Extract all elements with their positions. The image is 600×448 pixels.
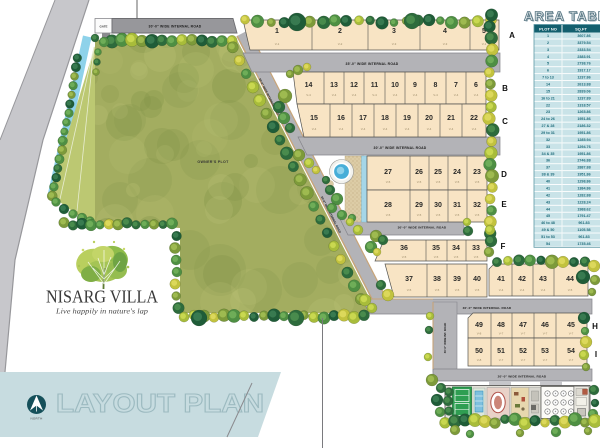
svg-text:49 & 50: 49 & 50 [542, 228, 555, 232]
svg-text:1: 1 [547, 34, 549, 38]
svg-text:V-4: V-4 [541, 288, 546, 292]
svg-text:V-4: V-4 [454, 93, 459, 97]
svg-text:AREA TABLE: AREA TABLE [524, 9, 600, 24]
svg-text:33: 33 [472, 245, 480, 252]
svg-text:V-5: V-5 [568, 288, 573, 292]
svg-text:V-1: V-1 [275, 42, 280, 46]
svg-text:22: 22 [470, 115, 478, 122]
svg-text:D: D [501, 170, 507, 179]
svg-text:1988.62: 1988.62 [577, 207, 590, 211]
svg-text:37: 37 [546, 166, 550, 170]
svg-text:2383.91: 2383.91 [577, 55, 590, 59]
svg-text:1951.86: 1951.86 [577, 152, 590, 156]
svg-text:13: 13 [330, 82, 338, 89]
svg-text:4: 4 [443, 28, 447, 35]
svg-text:Live happily in nature's lap: Live happily in nature's lap [55, 307, 148, 316]
svg-text:50: 50 [475, 348, 483, 355]
svg-text:39: 39 [453, 276, 461, 283]
svg-text:B: B [502, 84, 508, 93]
svg-text:V-5: V-5 [386, 213, 391, 217]
svg-text:46: 46 [541, 322, 549, 329]
svg-text:51: 51 [497, 348, 505, 355]
svg-text:V-7: V-7 [543, 332, 548, 336]
svg-text:V-5: V-5 [475, 213, 480, 217]
svg-text:961.83: 961.83 [578, 235, 589, 239]
svg-text:23: 23 [473, 169, 481, 176]
svg-text:V-4: V-4 [449, 127, 454, 131]
svg-text:32: 32 [546, 138, 550, 142]
svg-text:V-7: V-7 [543, 358, 548, 362]
svg-text:V-8: V-8 [477, 332, 482, 336]
svg-text:32: 32 [473, 202, 481, 209]
svg-text:V-7: V-7 [521, 332, 526, 336]
svg-text:6: 6 [474, 82, 478, 89]
svg-text:V-5: V-5 [436, 213, 441, 217]
svg-text:1282.88: 1282.88 [577, 193, 590, 197]
svg-text:1285.94: 1285.94 [577, 138, 591, 142]
svg-text:V-5: V-5 [436, 180, 441, 184]
svg-text:3379.54: 3379.54 [577, 41, 591, 45]
svg-text:V-5: V-5 [434, 255, 439, 259]
svg-text:29: 29 [415, 202, 423, 209]
svg-text:22: 22 [546, 103, 550, 107]
svg-text:54: 54 [567, 348, 575, 355]
svg-text:10: 10 [391, 82, 399, 89]
svg-text:40: 40 [546, 180, 550, 184]
svg-text:48: 48 [497, 322, 505, 329]
svg-text:27 & 28: 27 & 28 [542, 124, 555, 128]
svg-text:V-7: V-7 [569, 332, 574, 336]
svg-text:V-5: V-5 [417, 180, 422, 184]
svg-text:V-4: V-4 [427, 127, 432, 131]
svg-text:V-5: V-5 [417, 213, 422, 217]
svg-text:H: H [592, 322, 598, 331]
svg-text:34: 34 [452, 245, 460, 252]
svg-text:V-4: V-4 [352, 93, 357, 97]
svg-text:V-3: V-3 [392, 42, 397, 46]
svg-text:36: 36 [400, 245, 408, 252]
svg-text:LAYOUT PLAN: LAYOUT PLAN [56, 388, 264, 418]
svg-text:1917.17: 1917.17 [577, 69, 590, 73]
svg-text:SQ.FT: SQ.FT [575, 27, 587, 32]
svg-text:A: A [509, 31, 515, 40]
svg-text:2613.88: 2613.88 [577, 83, 590, 87]
svg-text:V-5: V-5 [454, 255, 459, 259]
svg-text:V-7: V-7 [569, 358, 574, 362]
svg-text:26: 26 [415, 169, 423, 176]
svg-text:21: 21 [447, 115, 455, 122]
svg-text:49: 49 [475, 322, 483, 329]
svg-text:NORTH: NORTH [30, 417, 42, 421]
svg-text:OWNER'S PLOT: OWNER'S PLOT [197, 160, 229, 164]
svg-text:1384.86: 1384.86 [577, 186, 590, 190]
svg-text:F: F [501, 242, 506, 251]
svg-text:V-4: V-4 [372, 93, 377, 97]
svg-text:28: 28 [384, 202, 392, 209]
svg-text:961.83: 961.83 [578, 221, 589, 225]
svg-text:30'-0" WIDE INTERNAL ROAD: 30'-0" WIDE INTERNAL ROAD [463, 306, 512, 310]
svg-text:V-4: V-4 [361, 127, 366, 131]
svg-text:33: 33 [546, 145, 550, 149]
svg-text:9: 9 [413, 82, 417, 89]
svg-text:37: 37 [405, 276, 413, 283]
svg-text:V-4: V-4 [339, 127, 344, 131]
svg-text:V-5: V-5 [474, 255, 479, 259]
svg-text:3607.86: 3607.86 [577, 34, 590, 38]
svg-text:1265.86: 1265.86 [577, 110, 590, 114]
svg-text:V-5: V-5 [407, 288, 412, 292]
svg-text:V-4: V-4 [520, 288, 525, 292]
svg-text:V-5: V-5 [455, 180, 460, 184]
svg-text:16: 16 [337, 115, 345, 122]
svg-text:E: E [501, 200, 507, 209]
svg-text:V-5: V-5 [475, 288, 480, 292]
svg-text:1735.46: 1735.46 [577, 242, 590, 246]
svg-text:GATE: GATE [99, 25, 107, 29]
svg-text:V-4: V-4 [474, 93, 479, 97]
svg-text:15: 15 [310, 115, 318, 122]
svg-text:V-4: V-4 [383, 127, 388, 131]
svg-text:1318.57: 1318.57 [577, 103, 590, 107]
svg-text:6: 6 [547, 69, 549, 73]
svg-text:1951.86: 1951.86 [577, 117, 590, 121]
svg-text:12: 12 [350, 82, 358, 89]
svg-text:20'-0" WIDE INTERNAL ROAD: 20'-0" WIDE INTERNAL ROAD [498, 375, 547, 379]
svg-text:38: 38 [433, 276, 441, 283]
svg-text:V-8: V-8 [477, 358, 482, 362]
svg-text:V-2: V-2 [338, 42, 343, 46]
svg-text:V-5: V-5 [455, 213, 460, 217]
svg-text:16 to 21: 16 to 21 [541, 96, 555, 100]
svg-text:47: 47 [519, 322, 527, 329]
svg-text:51 to 53: 51 to 53 [541, 235, 555, 239]
svg-text:52: 52 [519, 348, 527, 355]
svg-text:25: 25 [434, 169, 442, 176]
svg-text:30'-0" WIDE INTERNAL ROAD: 30'-0" WIDE INTERNAL ROAD [398, 226, 447, 230]
svg-text:2839.06: 2839.06 [577, 89, 590, 93]
svg-text:8: 8 [434, 82, 438, 89]
svg-text:14: 14 [305, 82, 313, 89]
svg-text:2738.76: 2738.76 [577, 62, 590, 66]
svg-text:41: 41 [497, 276, 505, 283]
svg-text:30: 30 [434, 202, 442, 209]
svg-text:20: 20 [425, 115, 433, 122]
svg-text:V-4: V-4 [413, 93, 418, 97]
svg-text:3: 3 [392, 28, 396, 35]
svg-text:V-7: V-7 [521, 358, 526, 362]
svg-text:53: 53 [541, 348, 549, 355]
svg-text:V-5: V-5 [475, 180, 480, 184]
svg-text:1105.58: 1105.58 [577, 228, 590, 232]
svg-text:2: 2 [547, 41, 549, 45]
svg-text:7: 7 [454, 82, 458, 89]
svg-text:35: 35 [432, 245, 440, 252]
svg-text:V-5: V-5 [455, 288, 460, 292]
svg-text:41: 41 [546, 186, 550, 190]
svg-text:30'-0" WIDE INTERNAL ROAD: 30'-0" WIDE INTERNAL ROAD [374, 146, 427, 150]
svg-text:42: 42 [546, 193, 550, 197]
svg-text:35'-0" WIDE INTERNAL ROAD: 35'-0" WIDE INTERNAL ROAD [346, 62, 399, 66]
svg-text:31: 31 [453, 202, 461, 209]
svg-text:34 & 35: 34 & 35 [542, 152, 555, 156]
svg-text:1228.24: 1228.24 [577, 200, 591, 204]
svg-text:1791.47: 1791.47 [577, 214, 590, 218]
svg-text:V-4: V-4 [306, 93, 311, 97]
svg-text:15: 15 [546, 89, 550, 93]
svg-text:V-7: V-7 [499, 332, 504, 336]
svg-text:11: 11 [371, 82, 379, 89]
svg-text:1237.89: 1237.89 [577, 96, 590, 100]
svg-text:38 & 39: 38 & 39 [542, 173, 555, 177]
svg-text:18: 18 [381, 115, 389, 122]
svg-text:1951.86: 1951.86 [577, 131, 590, 135]
svg-text:V-5: V-5 [435, 288, 440, 292]
svg-text:V-5: V-5 [402, 255, 407, 259]
svg-text:3: 3 [547, 48, 549, 52]
svg-text:1298.86: 1298.86 [577, 180, 590, 184]
svg-text:40: 40 [473, 276, 481, 283]
svg-text:45: 45 [567, 322, 575, 329]
svg-text:36: 36 [546, 159, 550, 163]
svg-text:C: C [502, 117, 508, 126]
svg-text:27: 27 [384, 169, 392, 176]
svg-text:PLOT NO: PLOT NO [539, 27, 557, 32]
svg-text:30'-0" WIDE INT. ROAD: 30'-0" WIDE INT. ROAD [443, 323, 447, 353]
svg-text:V-4: V-4 [472, 127, 477, 131]
svg-text:29 to 31: 29 to 31 [541, 131, 555, 135]
svg-text:7 to 13: 7 to 13 [542, 76, 554, 80]
svg-text:V-4: V-4 [312, 127, 317, 131]
svg-text:46 to 48: 46 to 48 [541, 221, 555, 225]
svg-text:19: 19 [403, 115, 411, 122]
svg-text:1951.86: 1951.86 [577, 173, 590, 177]
svg-text:1: 1 [275, 28, 279, 35]
svg-text:V-4: V-4 [433, 93, 438, 97]
svg-text:2186.32: 2186.32 [577, 124, 590, 128]
svg-text:17: 17 [359, 115, 367, 122]
svg-text:1237.86: 1237.86 [577, 76, 590, 80]
svg-text:43: 43 [546, 200, 550, 204]
svg-text:2: 2 [338, 28, 342, 35]
svg-text:23: 23 [546, 110, 550, 114]
svg-text:V-1: V-1 [482, 42, 487, 46]
svg-text:2746.88: 2746.88 [577, 159, 590, 163]
svg-text:1294.76: 1294.76 [577, 145, 590, 149]
svg-text:V-5: V-5 [386, 180, 391, 184]
svg-text:V-4: V-4 [393, 93, 398, 97]
svg-text:2887.88: 2887.88 [577, 166, 590, 170]
svg-text:V-3: V-3 [443, 42, 448, 46]
svg-text:24 to 26: 24 to 26 [541, 117, 555, 121]
svg-text:NISARG VILLA: NISARG VILLA [46, 287, 158, 307]
svg-text:45: 45 [546, 214, 550, 218]
svg-text:V-4: V-4 [332, 93, 337, 97]
svg-text:V-7: V-7 [499, 358, 504, 362]
svg-text:30'-0" WIDE INTERNAL ROAD: 30'-0" WIDE INTERNAL ROAD [149, 25, 202, 29]
svg-text:24: 24 [453, 169, 461, 176]
svg-text:V-4: V-4 [499, 288, 504, 292]
svg-text:2333.54: 2333.54 [577, 48, 591, 52]
svg-text:44: 44 [566, 276, 574, 283]
svg-text:V-4: V-4 [405, 127, 410, 131]
svg-text:5: 5 [547, 62, 549, 66]
svg-text:43: 43 [539, 276, 547, 283]
svg-text:42: 42 [518, 276, 526, 283]
svg-text:I: I [595, 350, 597, 359]
